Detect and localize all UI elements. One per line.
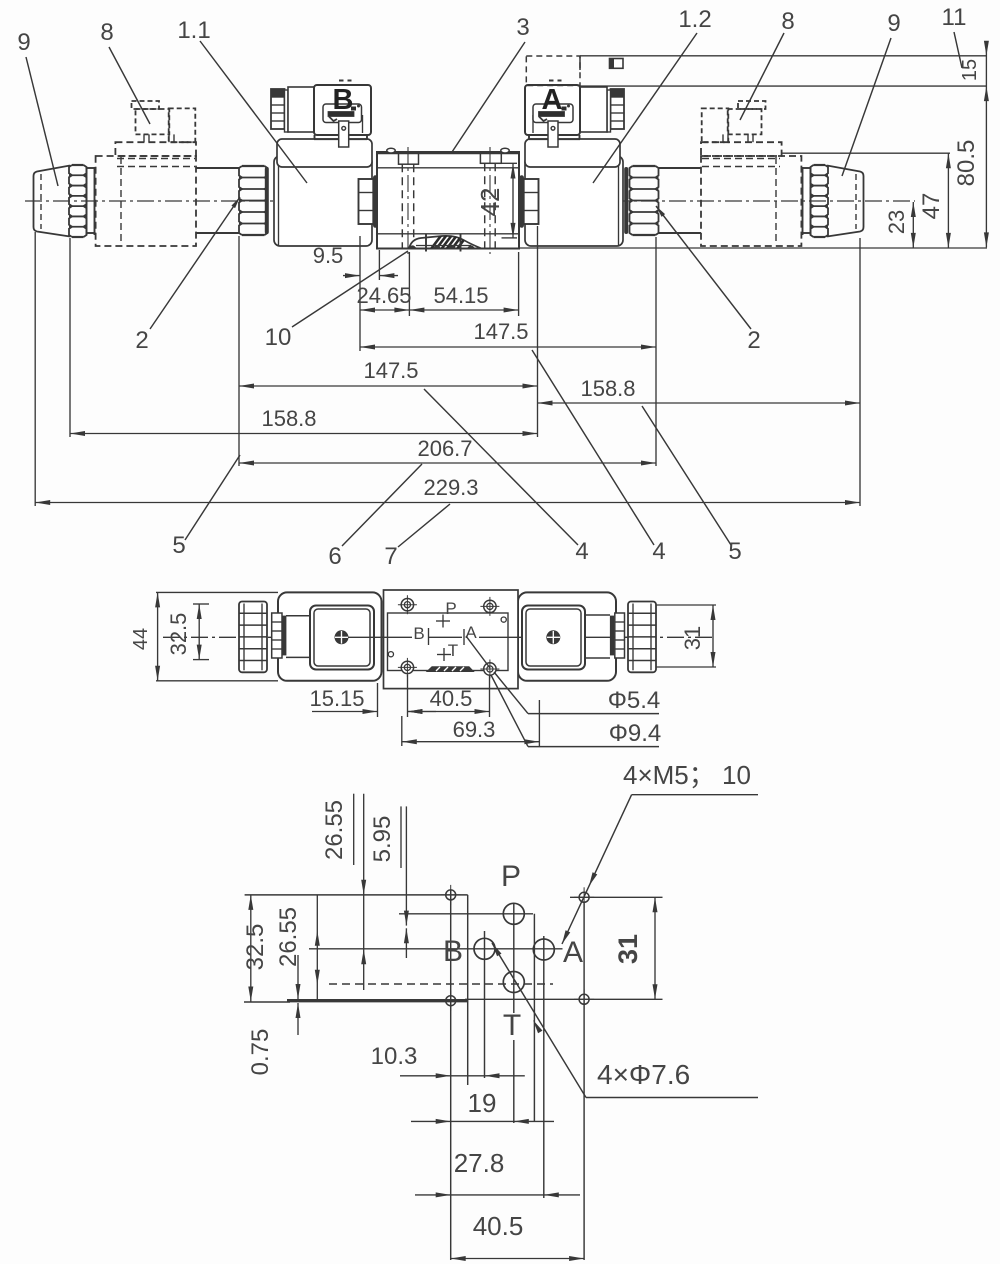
svg-text:10.3: 10.3 bbox=[371, 1043, 418, 1070]
svg-text:15.15: 15.15 bbox=[309, 686, 364, 711]
svg-text:Φ5.4: Φ5.4 bbox=[608, 687, 661, 714]
svg-text:31: 31 bbox=[613, 934, 643, 964]
svg-text:4: 4 bbox=[652, 538, 665, 565]
svg-text:9.5: 9.5 bbox=[313, 243, 344, 268]
svg-text:80.5: 80.5 bbox=[953, 140, 980, 187]
svg-text:40.5: 40.5 bbox=[473, 1211, 524, 1241]
svg-text:5: 5 bbox=[172, 532, 185, 559]
svg-text:40.5: 40.5 bbox=[430, 686, 473, 711]
svg-text:P: P bbox=[445, 599, 456, 618]
svg-text:1.2: 1.2 bbox=[678, 6, 711, 33]
svg-text:4×M5； 10: 4×M5； 10 bbox=[623, 760, 751, 790]
svg-text:31: 31 bbox=[680, 626, 705, 650]
svg-text:5.95: 5.95 bbox=[369, 816, 396, 863]
svg-text:32.5: 32.5 bbox=[166, 613, 191, 656]
svg-text:B: B bbox=[413, 624, 424, 643]
svg-text:26.55: 26.55 bbox=[321, 800, 348, 860]
svg-text:8: 8 bbox=[781, 8, 794, 35]
svg-text:9: 9 bbox=[887, 10, 900, 37]
svg-text:19: 19 bbox=[468, 1088, 497, 1118]
svg-text:9: 9 bbox=[17, 29, 30, 56]
svg-text:4×Φ7.6: 4×Φ7.6 bbox=[597, 1059, 690, 1090]
svg-text:6: 6 bbox=[328, 543, 341, 570]
svg-text:1.1: 1.1 bbox=[177, 17, 210, 44]
svg-text:47: 47 bbox=[918, 193, 945, 220]
svg-text:B: B bbox=[333, 84, 354, 116]
svg-text:206.7: 206.7 bbox=[417, 436, 472, 461]
svg-text:44: 44 bbox=[130, 628, 152, 650]
svg-text:32.5: 32.5 bbox=[242, 924, 269, 971]
svg-text:3: 3 bbox=[516, 14, 529, 41]
svg-text:229.3: 229.3 bbox=[423, 475, 478, 500]
svg-text:T: T bbox=[448, 641, 458, 660]
svg-text:147.5: 147.5 bbox=[473, 319, 528, 344]
svg-text:A: A bbox=[563, 936, 583, 969]
svg-text:24.65: 24.65 bbox=[356, 283, 411, 308]
svg-text:11: 11 bbox=[942, 4, 967, 31]
svg-text:158.8: 158.8 bbox=[580, 376, 635, 401]
svg-text:158.8: 158.8 bbox=[261, 406, 316, 431]
svg-text:7: 7 bbox=[384, 543, 397, 570]
svg-text:Φ9.4: Φ9.4 bbox=[609, 720, 662, 747]
svg-text:A: A bbox=[542, 84, 563, 116]
svg-text:4: 4 bbox=[575, 538, 588, 565]
svg-text:54.15: 54.15 bbox=[433, 283, 488, 308]
svg-text:15: 15 bbox=[959, 59, 981, 81]
svg-text:10: 10 bbox=[265, 324, 292, 351]
svg-text:5: 5 bbox=[728, 538, 741, 565]
svg-text:27.8: 27.8 bbox=[454, 1148, 505, 1178]
svg-text:A: A bbox=[465, 623, 477, 642]
svg-text:2: 2 bbox=[747, 327, 760, 354]
svg-text:2: 2 bbox=[135, 327, 148, 354]
svg-text:T: T bbox=[503, 1009, 521, 1042]
svg-text:B: B bbox=[443, 935, 463, 968]
svg-text:P: P bbox=[501, 860, 521, 893]
svg-text:8: 8 bbox=[100, 19, 113, 46]
svg-text:69.3: 69.3 bbox=[453, 717, 496, 742]
svg-text:42: 42 bbox=[475, 188, 505, 217]
svg-text:23: 23 bbox=[884, 210, 909, 234]
svg-text:0.75: 0.75 bbox=[247, 1029, 274, 1076]
svg-text:147.5: 147.5 bbox=[363, 358, 418, 383]
